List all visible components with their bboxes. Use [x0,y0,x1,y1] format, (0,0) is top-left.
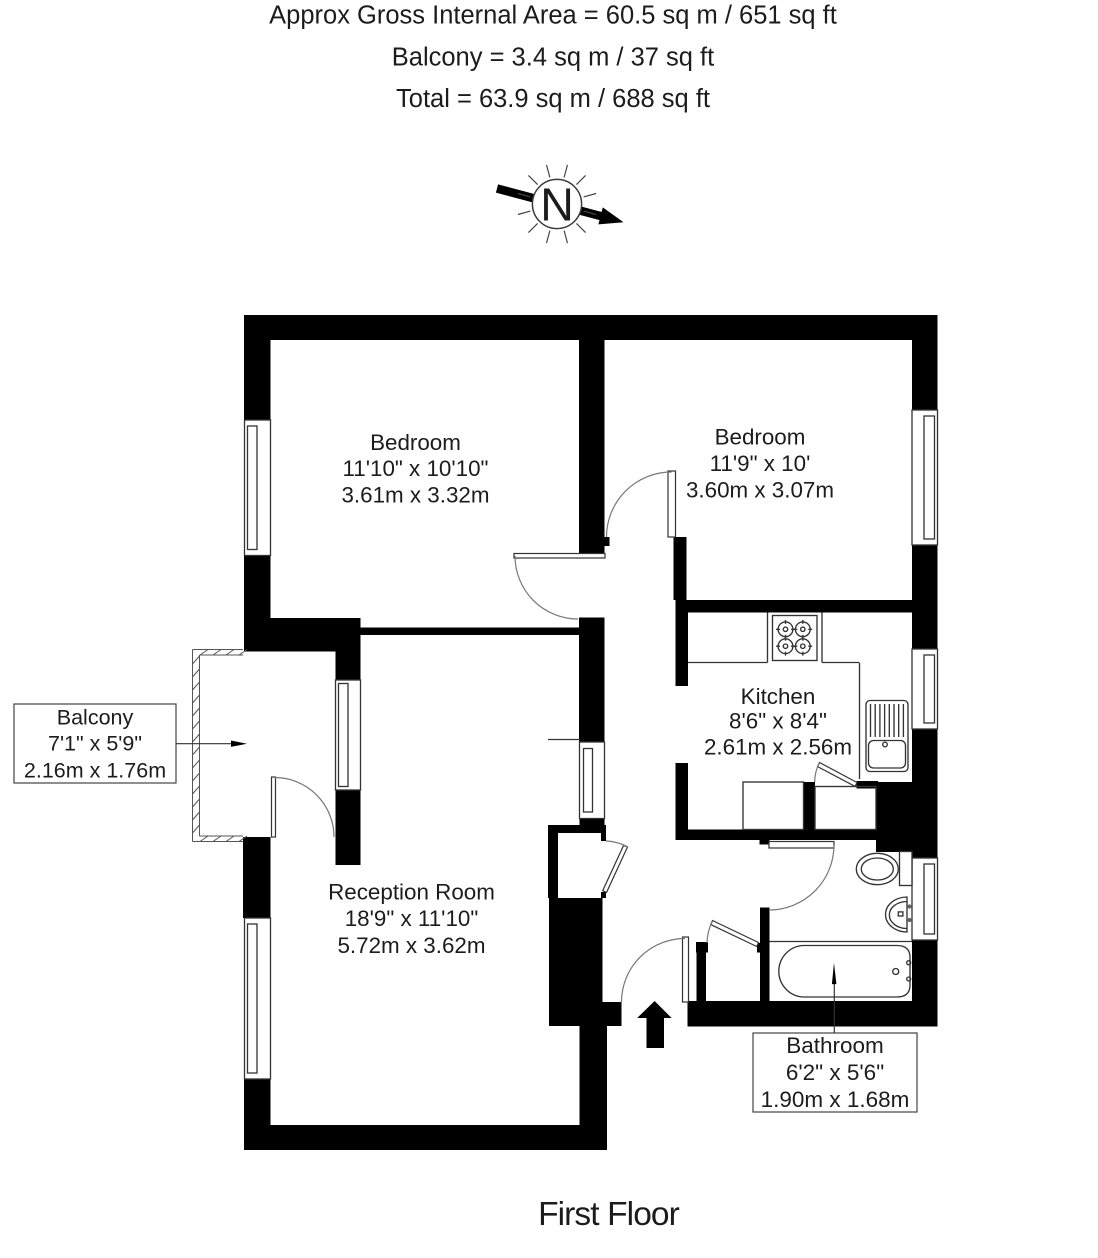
svg-text:6'2" x 5'6": 6'2" x 5'6" [786,1060,884,1085]
svg-text:1.90m x 1.68m: 1.90m x 1.68m [761,1087,910,1112]
svg-text:Bedroom: Bedroom [715,424,806,449]
svg-text:5.72m x 3.62m: 5.72m x 3.62m [337,933,485,958]
svg-text:Kitchen: Kitchen [741,684,816,709]
svg-text:2.16m x 1.76m: 2.16m x 1.76m [24,759,166,783]
svg-text:Bathroom: Bathroom [786,1033,884,1058]
svg-text:7'1" x 5'9": 7'1" x 5'9" [48,732,142,756]
svg-text:Bedroom: Bedroom [370,430,461,455]
svg-text:3.60m x 3.07m: 3.60m x 3.07m [686,478,834,503]
svg-text:First Floor: First Floor [538,1196,680,1233]
svg-text:11'10" x 10'10": 11'10" x 10'10" [342,456,488,481]
svg-text:18'9" x 11'10": 18'9" x 11'10" [345,906,479,931]
svg-text:3.61m x 3.32m: 3.61m x 3.32m [341,483,489,508]
svg-text:Balcony = 3.4 sq m / 37 sq ft: Balcony = 3.4 sq m / 37 sq ft [392,44,714,72]
svg-text:Balcony: Balcony [57,706,134,730]
svg-text:8'6" x 8'4": 8'6" x 8'4" [729,708,827,733]
svg-text:Reception Room: Reception Room [328,880,495,905]
svg-text:Total = 63.9 sq m / 688 sq ft: Total = 63.9 sq m / 688 sq ft [396,85,710,113]
svg-text:Approx Gross Internal Area = 6: Approx Gross Internal Area = 60.5 sq m /… [269,2,837,30]
svg-text:2.61m x 2.56m: 2.61m x 2.56m [704,734,852,759]
svg-text:N: N [540,179,574,231]
svg-text:11'9" x 10': 11'9" x 10' [710,451,811,476]
